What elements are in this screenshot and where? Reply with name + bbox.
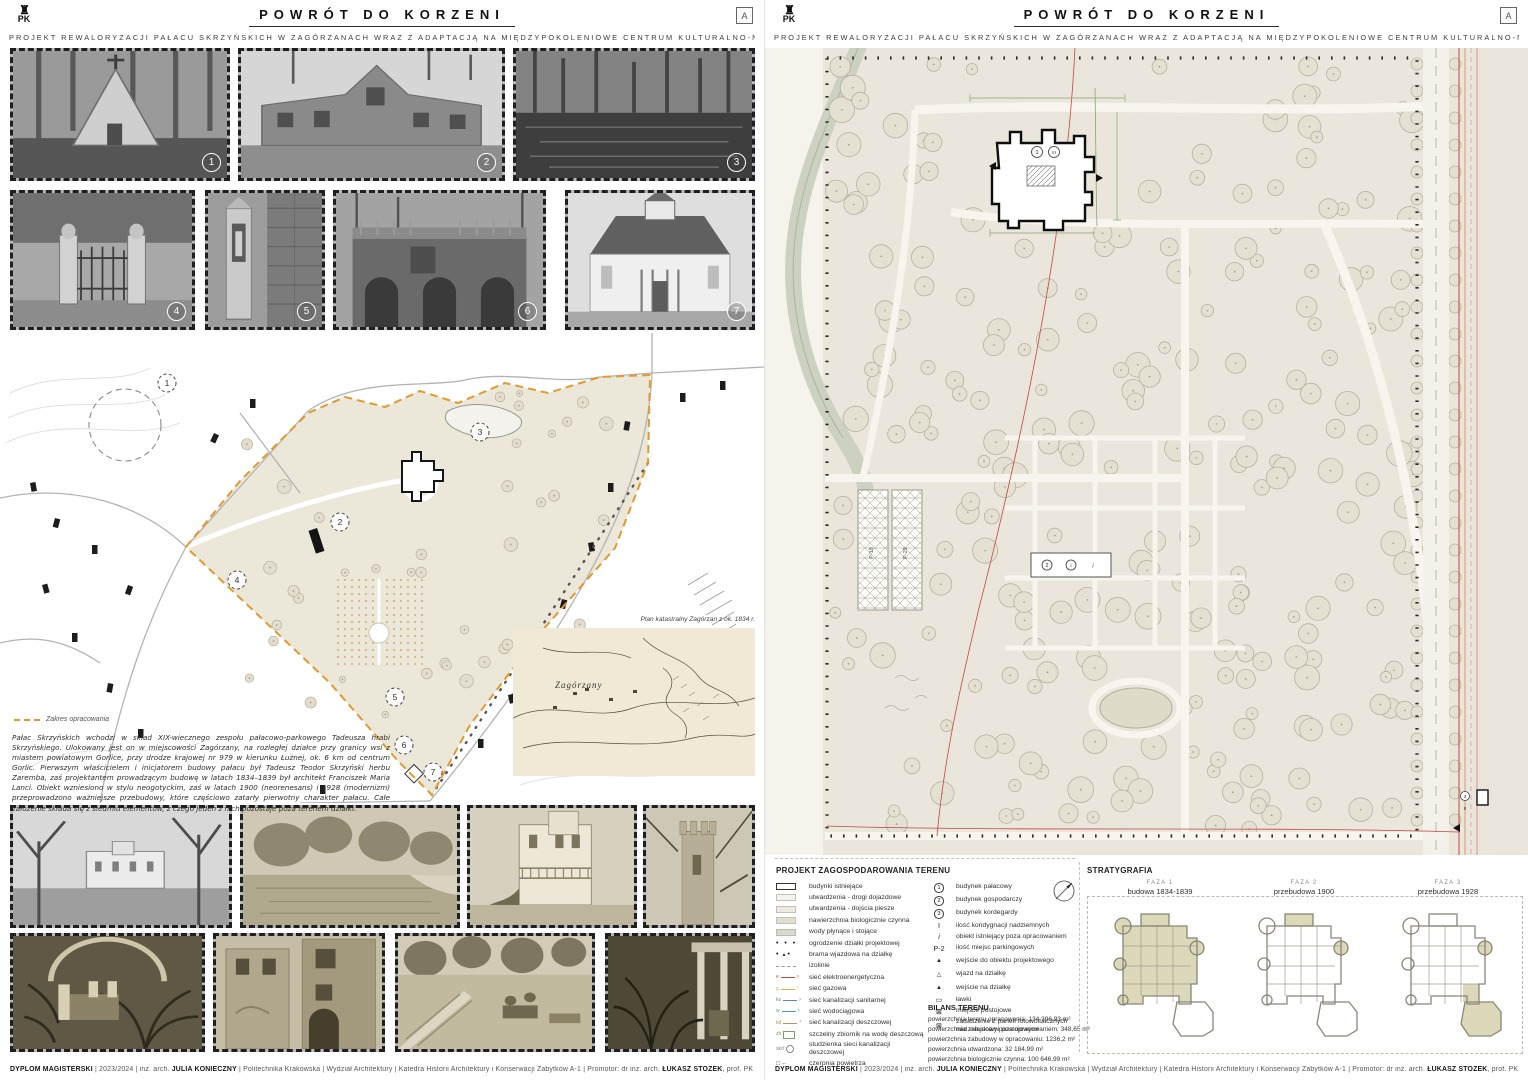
photo-historic-palace-park [10,805,232,928]
legend-item: △wjazd na działkę [928,969,1078,980]
photo-number-badge: 2 [477,153,496,172]
legend-item: skdstudzienka sieci kanalizacji deszczow… [776,1041,924,1056]
footer-program: DYPLOM MAGISTERSKI [775,1066,858,1073]
gas-line-icon: g [776,985,803,994]
photo-number-badge: 5 [297,302,316,321]
scope-dash-icon [14,719,40,721]
a1-department-logo: A [736,7,753,24]
legend-item: esieć elektroenergetyczna [776,973,924,982]
legend-item: utwardzenia - drogi dojazdowe [776,893,924,902]
phase-2-plan [1258,914,1357,1036]
storeys-count-icon: I [928,921,950,930]
outside-scope-icon: i [928,932,950,941]
site-balance-line: powierzchnia zabudowy w opracowaniu: 123… [928,1035,1103,1045]
legend-item: kssieć kanalizacji sanitarnej [776,996,924,1005]
existing-building-swatch [776,882,803,891]
storm-manhole-icon: skd [776,1045,803,1054]
photo-number-badge: 7 [727,302,746,321]
legend-item: P-2ilość miejsc parkingowych [928,944,1078,953]
svg-text:2: 2 [338,517,343,527]
board-subtitle: PROJEKT REWALORYZACJI PAŁACU SKRZYŃSKICH… [9,33,755,42]
legend-item: Iilość kondygnacji nadziemnych [928,921,1078,930]
cadastral-map-caption: Plan katastralny Zagórzan z ok. 1834 r. [380,616,755,623]
sanitary-sewer-line-icon: ks [776,996,803,1005]
left-board: ♜ PK POWRÓT DO KORZENI A PROJEKT REWALOR… [0,0,764,1080]
stratigraphy-title: STRATYGRAFIA [1087,866,1153,875]
photo-historic-palace-balcony [467,805,637,928]
photo-historic-veranda [605,933,755,1052]
site-driveway-icon: △ [928,969,950,980]
svg-text:I: I [1070,563,1071,568]
footer-credits: DYPLOM MAGISTERSKI | 2023/2024 | inż. ar… [775,1066,1522,1073]
photo-entry-gate: 4 [10,190,195,330]
scope-legend-label: Zakres opracowania [46,716,109,723]
parking-count-icon: P-2 [928,944,950,953]
phase-1-name: FAZA 1 [1095,880,1225,886]
water-main-line-icon: w [776,1007,803,1016]
legend-item: •▴•brama wjazdowa na działkę [776,950,924,959]
project-description: Pałac Skrzyńskich wchodzi w skład XIX-wi… [12,733,390,814]
photo-outbuilding-ruin: 2 [238,48,505,181]
site-balance-block: BILANS TERENU powierzchnia terenu opraco… [928,1003,1103,1065]
section-divider [1079,862,1080,1052]
legend-item: gsieć gazowa [776,985,924,994]
circled-2-icon: 2 [928,895,950,906]
water-swatch [776,928,803,937]
footer-promoter: ŁUKASZ STOŻEK [1427,1066,1487,1073]
photo-historic-tower [643,805,755,928]
photo-number-badge: 1 [202,153,221,172]
map-place-label: Zagórzany [555,680,603,690]
footer-author: JULIA KONIECZNY [937,1066,1002,1073]
svg-text:II: II [1464,806,1466,811]
phase-3-desc: przebudowa 1928 [1383,887,1513,896]
board-subtitle: PROJEKT REWALORYZACJI PAŁACU SKRZYŃSKICH… [774,33,1519,42]
phase-2-desc: przebudowa 1900 [1239,887,1369,896]
svg-text:5: 5 [393,692,398,702]
svg-text:P-18: P-18 [869,547,875,559]
legend-title: PROJEKT ZAGOSPODAROWANIA TERENU [776,866,950,875]
phase-2-name: FAZA 2 [1239,880,1369,886]
legend-item: iobiekt istniejący poza opracowaniem [928,932,1078,941]
svg-text:P-29: P-29 [903,547,909,559]
phase-3-plan [1402,914,1501,1036]
a1-department-logo: A [1500,7,1517,24]
photo-palace-front: 7 [565,190,755,330]
fence-dots-icon: • • • [776,939,803,948]
board-title: POWRÓT DO KORZENI [765,7,1528,27]
photo-historic-courtyard-ruin [213,933,385,1052]
site-balance-line: powierzchnia biologicznie czynna: 100 64… [928,1055,1103,1065]
photo-arcade-ruin: 6 [333,190,546,330]
svg-text:7: 7 [431,767,436,777]
svg-text:III: III [1052,150,1056,155]
phase-1-desc: budowa 1834-1839 [1095,887,1225,896]
site-development-plan: P-18 P-29 1 III 2 I i [765,48,1528,855]
rain-tank-icon: zb [776,1030,803,1039]
footer-credits: DYPLOM MAGISTERSKI | 2023/2024 | inż. ar… [10,1066,758,1073]
courtyard [1027,166,1055,186]
cadastral-map-drawing [513,628,755,776]
isoline-icon [776,962,803,971]
site-balance-title: BILANS TERENU [928,1003,1103,1012]
phase-1-plan [1114,914,1213,1036]
legend-item: • • •ogrodzenie działki projektowej [776,939,924,948]
site-balance-line: powierzchnia terenu opracowania: 134 396… [928,1015,1103,1025]
phase-3-name: FAZA 3 [1383,880,1513,886]
legend-item: 3budynek kordegardy [928,908,1078,919]
legend-item: zbszczelny zbiornik na wodę deszczową [776,1030,924,1039]
legend-item: utwardzenia - dojścia piesze [776,905,924,914]
svg-text:6: 6 [402,740,407,750]
site-balance-lines: powierzchnia terenu opracowania: 134 396… [928,1015,1103,1065]
photo-historic-terrace [395,933,595,1052]
legend-item: kdsieć kanalizacji deszczowej [776,1019,924,1028]
svg-text:1: 1 [1035,150,1038,156]
legend-item: wody płynące i stojące [776,928,924,937]
legend-item: ▲wejście do obiektu projektowego [928,955,1078,966]
legend-divider [775,858,1075,859]
legend-item: ▲wejście na działkę [928,982,1078,993]
legend-item: nawierzchnia biologicznie czynna [776,916,924,925]
photo-number-badge: 6 [518,302,537,321]
outbuilding-footprint: 2 I i [1031,553,1111,577]
photo-number-badge: 4 [167,302,186,321]
cadastral-map-inset: Zagórzany [513,628,755,776]
scope-legend: Zakres opracowania [14,716,109,723]
north-arrow-icon [1051,878,1077,904]
pond [1100,688,1172,728]
photo-wall-shrine: 5 [205,190,325,330]
legend-item: wsieć wodociągowa [776,1007,924,1016]
board-title: POWRÓT DO KORZENI [0,7,764,27]
legend-column-surfaces: budynki istniejąceutwardzenia - drogi do… [776,882,924,1068]
legend-item: budynki istniejące [776,882,924,891]
storm-sewer-line-icon: kd [776,1019,803,1028]
bio-surface-swatch [776,916,803,925]
circled-3-icon: 3 [928,908,950,919]
photo-historic-pond [240,805,460,928]
photo-historic-palm-room [10,933,205,1052]
photo-pond: 3 [513,48,755,181]
legend-item: izolinie [776,962,924,971]
road-swatch [776,893,803,902]
footpath-swatch [776,905,803,914]
footer-program: DYPLOM MAGISTERSKI [10,1066,93,1073]
site-balance-line: powierzchnia utwardzona: 32 184,99 m² [928,1045,1103,1055]
svg-text:3: 3 [478,427,483,437]
footer-promoter: ŁUKASZ STOŻEK [662,1066,722,1073]
circled-1-icon: 1 [928,882,950,893]
svg-text:2: 2 [1046,563,1049,569]
photo-tomb-chapel: 1 [10,48,230,181]
svg-text:4: 4 [235,575,240,585]
site-balance-line: powierzchnia zabudowy poza opracowaniem:… [928,1025,1103,1035]
svg-text:1: 1 [165,378,170,388]
site-entrance-icon: ▲ [928,982,950,993]
footer-author: JULIA KONIECZNY [172,1066,237,1073]
stratigraphy-plans [1087,898,1521,1050]
photo-number-badge: 3 [727,153,746,172]
gate-icon: •▴• [776,950,803,959]
building-entrance-icon: ▲ [928,955,950,966]
right-board: ♜ PK POWRÓT DO KORZENI A PROJEKT REWALOR… [764,0,1528,1080]
power-line-icon: e [776,973,803,982]
